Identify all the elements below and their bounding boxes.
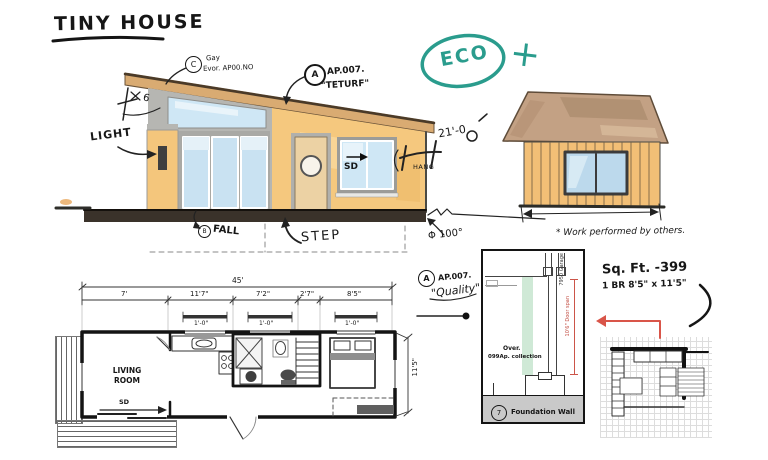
dresser [357,405,394,414]
shower-x [236,338,262,368]
title-underline [53,37,163,41]
shed-roof [125,73,434,133]
sliding-door-gap [97,413,167,420]
slope-mark: 6 [142,92,151,104]
page-title: TINY HOUSE [54,11,205,36]
red-dim-tick [570,374,578,375]
door-leaf [157,337,170,350]
gable-house-sketch [503,92,668,222]
dim-arrowhead [650,208,659,216]
pillar-cap [147,124,178,132]
clerestory-window [168,97,266,128]
plan-kitchen-tiles [172,350,234,415]
wall-line [556,276,557,375]
plan-side-dim: 11'5" [411,358,419,377]
elevation-sd-label: SD [344,162,358,172]
angle-arrowhead [427,218,436,226]
slope-cross [131,92,140,100]
entry-door-leaf [230,417,243,439]
washer-drum [246,371,257,382]
fall-label: FALL [212,224,239,238]
gable-base [520,206,664,207]
slope-cross [131,92,140,100]
slope-arc [123,108,160,115]
toilet-tank [281,380,296,385]
elevation-sketch [56,68,545,243]
kitchen-counter [172,336,234,351]
step-label: STEP [301,228,342,246]
entry-door-swing [243,417,256,439]
base-platform [84,210,426,222]
washer [240,369,262,384]
toilet [281,370,296,381]
note-a-arrowhead [283,96,291,105]
hang-mark [400,152,441,158]
red-dim-tick [570,279,578,280]
red-reference-arrow [596,315,660,338]
bathroom-walls [233,334,320,386]
plan-sd-label: SD [119,398,129,406]
dim-arrowhead [523,209,532,218]
detail-garage-label: 7950 Garage [559,253,565,286]
callout-line2: "Quality" [430,281,481,300]
note-a-line2: "TETURF" [321,79,370,92]
pillow [334,341,350,350]
gable-dim-line [524,212,658,214]
step-arrowhead [281,217,290,228]
roof-highlight [600,125,658,138]
bath-sink [276,342,286,355]
glass-door-panel [212,137,238,208]
height-dim-label: 21'-0 [437,123,467,141]
fall-arrow [194,211,199,226]
glass-door-panel [241,137,267,208]
kitchen-sink [192,338,216,349]
floor-plan [79,282,412,439]
pillow [355,341,371,350]
gable-wall [524,142,660,206]
bed [330,338,375,388]
detail-collection-label: 099Ap. collection [488,354,542,360]
hang-label: HANG [413,163,434,171]
fall-bubble: B [198,225,211,238]
dashed-guides [150,224,407,252]
foundation-wall-detail-card: Over. 099Ap. collection 7950 Garage 10'6… [481,249,585,424]
step-arrow [285,224,301,243]
hang-arc [395,150,399,171]
glass-door-frame [178,131,270,212]
roof-shade [560,97,648,120]
board-siding-lines [532,143,649,205]
light-arrow [118,147,149,154]
shower [236,338,262,368]
detail-over-label: Over. [503,345,520,352]
sd-arrowhead [158,406,167,414]
wall-line [548,276,549,375]
ground-smudge [60,199,72,205]
plan-seg-dim-5: 8'5" [347,290,361,298]
dim-tick [659,204,661,220]
shower-x [236,338,262,368]
paren-swash [690,285,710,326]
eco-label: ECO [438,41,490,71]
note-c-bubble: C [185,56,202,73]
light-label: LIGHT [89,125,132,143]
right-dimension [396,333,412,416]
tiny-house-sketch-sheet: TINY HOUSE C Gay Evor. AP00.NO A AP.007.… [0,0,768,460]
wall-wash [396,152,420,202]
plan-bottom-deck [57,420,177,448]
note-c-leader [166,68,186,84]
plan-seg-dim-4: 2'7" [300,290,314,298]
gable-note: * Work performed by others. [556,226,685,238]
sqft-label: Sq. Ft. -399 [602,260,688,278]
roof-shade [510,100,545,138]
detail-span-label: 10'6" Door span [565,296,571,336]
slope-tick [118,99,137,104]
sd-slide-arrowhead [360,153,368,161]
callout-line1: AP.007. [438,271,472,283]
clerestory-highlight [175,101,238,116]
plan-window-mark-3: 1'-0" [345,320,359,327]
plan-window-mark-1: 1'-0" [194,320,208,327]
glass-highlight [183,137,209,150]
vanity [273,340,288,357]
loft-stairs [296,338,318,384]
door-swing [157,337,170,350]
window-highlight [568,156,588,188]
light-arrowhead [147,150,157,159]
plan-right-window [392,360,398,388]
entry-door-frame [291,133,331,212]
plan-total-dim: 45' [232,276,244,285]
plan-hall-tiles [236,388,320,415]
living-room-label: LIVING ROOM [103,366,151,386]
gable-roof [503,92,668,143]
corner-pillar [147,130,178,212]
slope-tick [123,88,128,120]
note-c-line2: Evor. AP00.NO [203,63,254,73]
height-tick [479,114,487,121]
plan-seg-dim-2: 11'7" [190,290,209,298]
elevation-right-wall [272,108,426,212]
plan-top-windows [185,329,375,335]
porthole-window [301,156,321,176]
window-sill [336,193,398,197]
detail-caption: Foundation Wall [511,408,575,416]
grade-squiggle [428,209,545,219]
detail-line [485,276,547,277]
glass-highlight [343,143,363,161]
glass-door-panel [183,137,209,208]
angle-label: Φ 100° [428,227,464,242]
left-glass-block-frame [148,88,272,212]
plate-box [543,267,553,276]
plan-seg-dim-1: 7' [121,290,127,298]
blanket-band [330,353,375,360]
note-a-line1: AP.007. [327,65,365,78]
detail-number-bubble: 7 [491,405,507,421]
roof-edge [125,74,434,123]
plan-seg-dim-3: 7'2" [256,290,270,298]
footing-key [538,372,552,380]
plan-window-mark-2: 1'-0" [259,320,273,327]
plan-left-deck [55,336,83,424]
detail-tag [486,280,498,287]
callout-bubble: A [418,270,435,287]
glass-highlight [241,137,267,150]
dim-tick [521,206,523,222]
note-c-line1: Gay [206,54,220,63]
sink-basin [196,340,212,347]
eco-plus: + [508,32,543,76]
gable-window [565,152,627,194]
insulation-band [522,276,533,375]
cad-mini-plan-paper [600,337,712,438]
red-dim-line [574,279,575,375]
hang-mark [402,146,406,170]
entry-door [295,137,327,212]
note-a-leader [286,77,304,100]
height-circle [467,131,477,141]
pillar-plaque [158,146,167,170]
bed-label: 1 BR 8'5" x 11'5" [602,279,687,292]
